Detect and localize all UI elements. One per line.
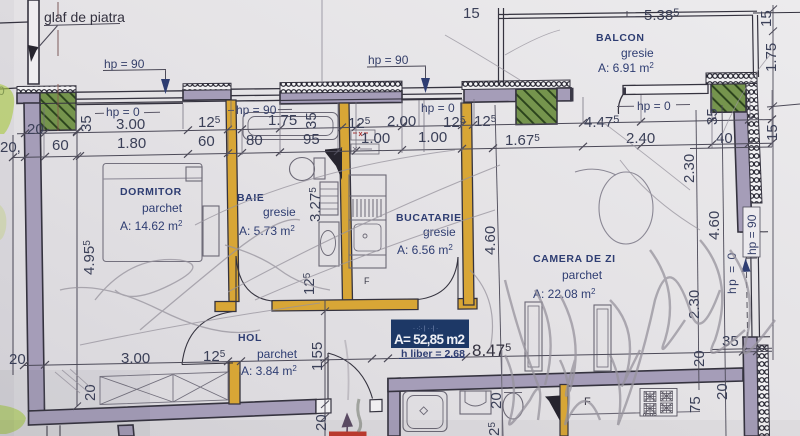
svg-text:3.00: 3.00	[116, 116, 145, 133]
svg-text:20: 20	[488, 392, 505, 409]
svg-text:35: 35	[303, 112, 320, 129]
svg-text:A: 14.62 m2: A: 14.62 m2	[120, 219, 183, 233]
svg-text:15: 15	[764, 124, 781, 141]
svg-text:gresie: gresie	[263, 205, 296, 219]
svg-text:parchet: parchet	[142, 201, 183, 215]
svg-text:parchet: parchet	[257, 347, 298, 361]
svg-text:HOL: HOL	[238, 332, 262, 344]
svg-text:60: 60	[198, 133, 215, 150]
svg-text:A= 52,85 m2: A= 52,85 m2	[394, 332, 465, 347]
svg-text:3.00: 3.00	[121, 350, 150, 367]
svg-text:A: 3.84 m2: A: 3.84 m2	[241, 364, 297, 378]
svg-text:hp = 0: hp = 0	[725, 251, 739, 294]
svg-text:75: 75	[687, 396, 704, 413]
svg-text:1.80: 1.80	[117, 135, 146, 152]
svg-text:4.60: 4.60	[706, 211, 723, 240]
svg-text:35: 35	[78, 115, 95, 132]
svg-text:A: 5.73 m2: A: 5.73 m2	[239, 224, 295, 238]
svg-text:80: 80	[246, 132, 263, 149]
svg-text:A: 6.56 m2: A: 6.56 m2	[397, 243, 453, 257]
svg-text:2.00: 2.00	[387, 113, 416, 130]
svg-text:hp = 90: hp = 90	[745, 214, 759, 255]
svg-text:BUCATARIE: BUCATARIE	[396, 212, 462, 224]
svg-text:BAIE: BAIE	[237, 192, 265, 204]
svg-text:20: 20	[691, 350, 708, 367]
svg-text:15: 15	[758, 10, 775, 27]
svg-text:20: 20	[27, 121, 44, 138]
svg-text:hp = 0: hp = 0	[637, 99, 671, 113]
svg-text:A: 6.91 m2: A: 6.91 m2	[598, 61, 654, 75]
svg-text:hp = 0: hp = 0	[421, 101, 455, 115]
svg-text:1.55: 1.55	[309, 342, 326, 371]
svg-text:2.30: 2.30	[681, 154, 698, 183]
svg-text:4.60: 4.60	[482, 226, 499, 255]
svg-text:60: 60	[52, 137, 69, 154]
svg-text:A: 22.08 m2: A: 22.08 m2	[533, 287, 596, 301]
svg-text:2.40: 2.40	[626, 130, 655, 147]
svg-text:35: 35	[704, 108, 721, 125]
svg-text:1.00: 1.00	[361, 130, 390, 147]
svg-text:F: F	[364, 276, 370, 286]
svg-text:hp = 90: hp = 90	[104, 57, 145, 71]
svg-text:20: 20	[714, 383, 731, 400]
svg-text:15: 15	[463, 5, 480, 22]
svg-text:· ·:· | · ·| ·: · ·:· | · ·| ·	[413, 326, 438, 332]
svg-text:hp = 90: hp = 90	[368, 53, 409, 67]
svg-text:40: 40	[716, 130, 733, 147]
svg-text:DORMITOR: DORMITOR	[120, 186, 182, 198]
svg-text:1.00: 1.00	[418, 129, 447, 146]
svg-text:gresie: gresie	[621, 46, 654, 60]
svg-text:CAMERA DE ZI: CAMERA DE ZI	[533, 253, 616, 265]
svg-text:BALCON: BALCON	[596, 32, 645, 44]
svg-text:95: 95	[303, 131, 320, 148]
svg-text:1.75: 1.75	[763, 43, 780, 72]
svg-text:1.75: 1.75	[268, 112, 297, 129]
svg-text:glaf de piatra: glaf de piatra	[44, 9, 125, 25]
svg-text:parchet: parchet	[562, 268, 603, 282]
